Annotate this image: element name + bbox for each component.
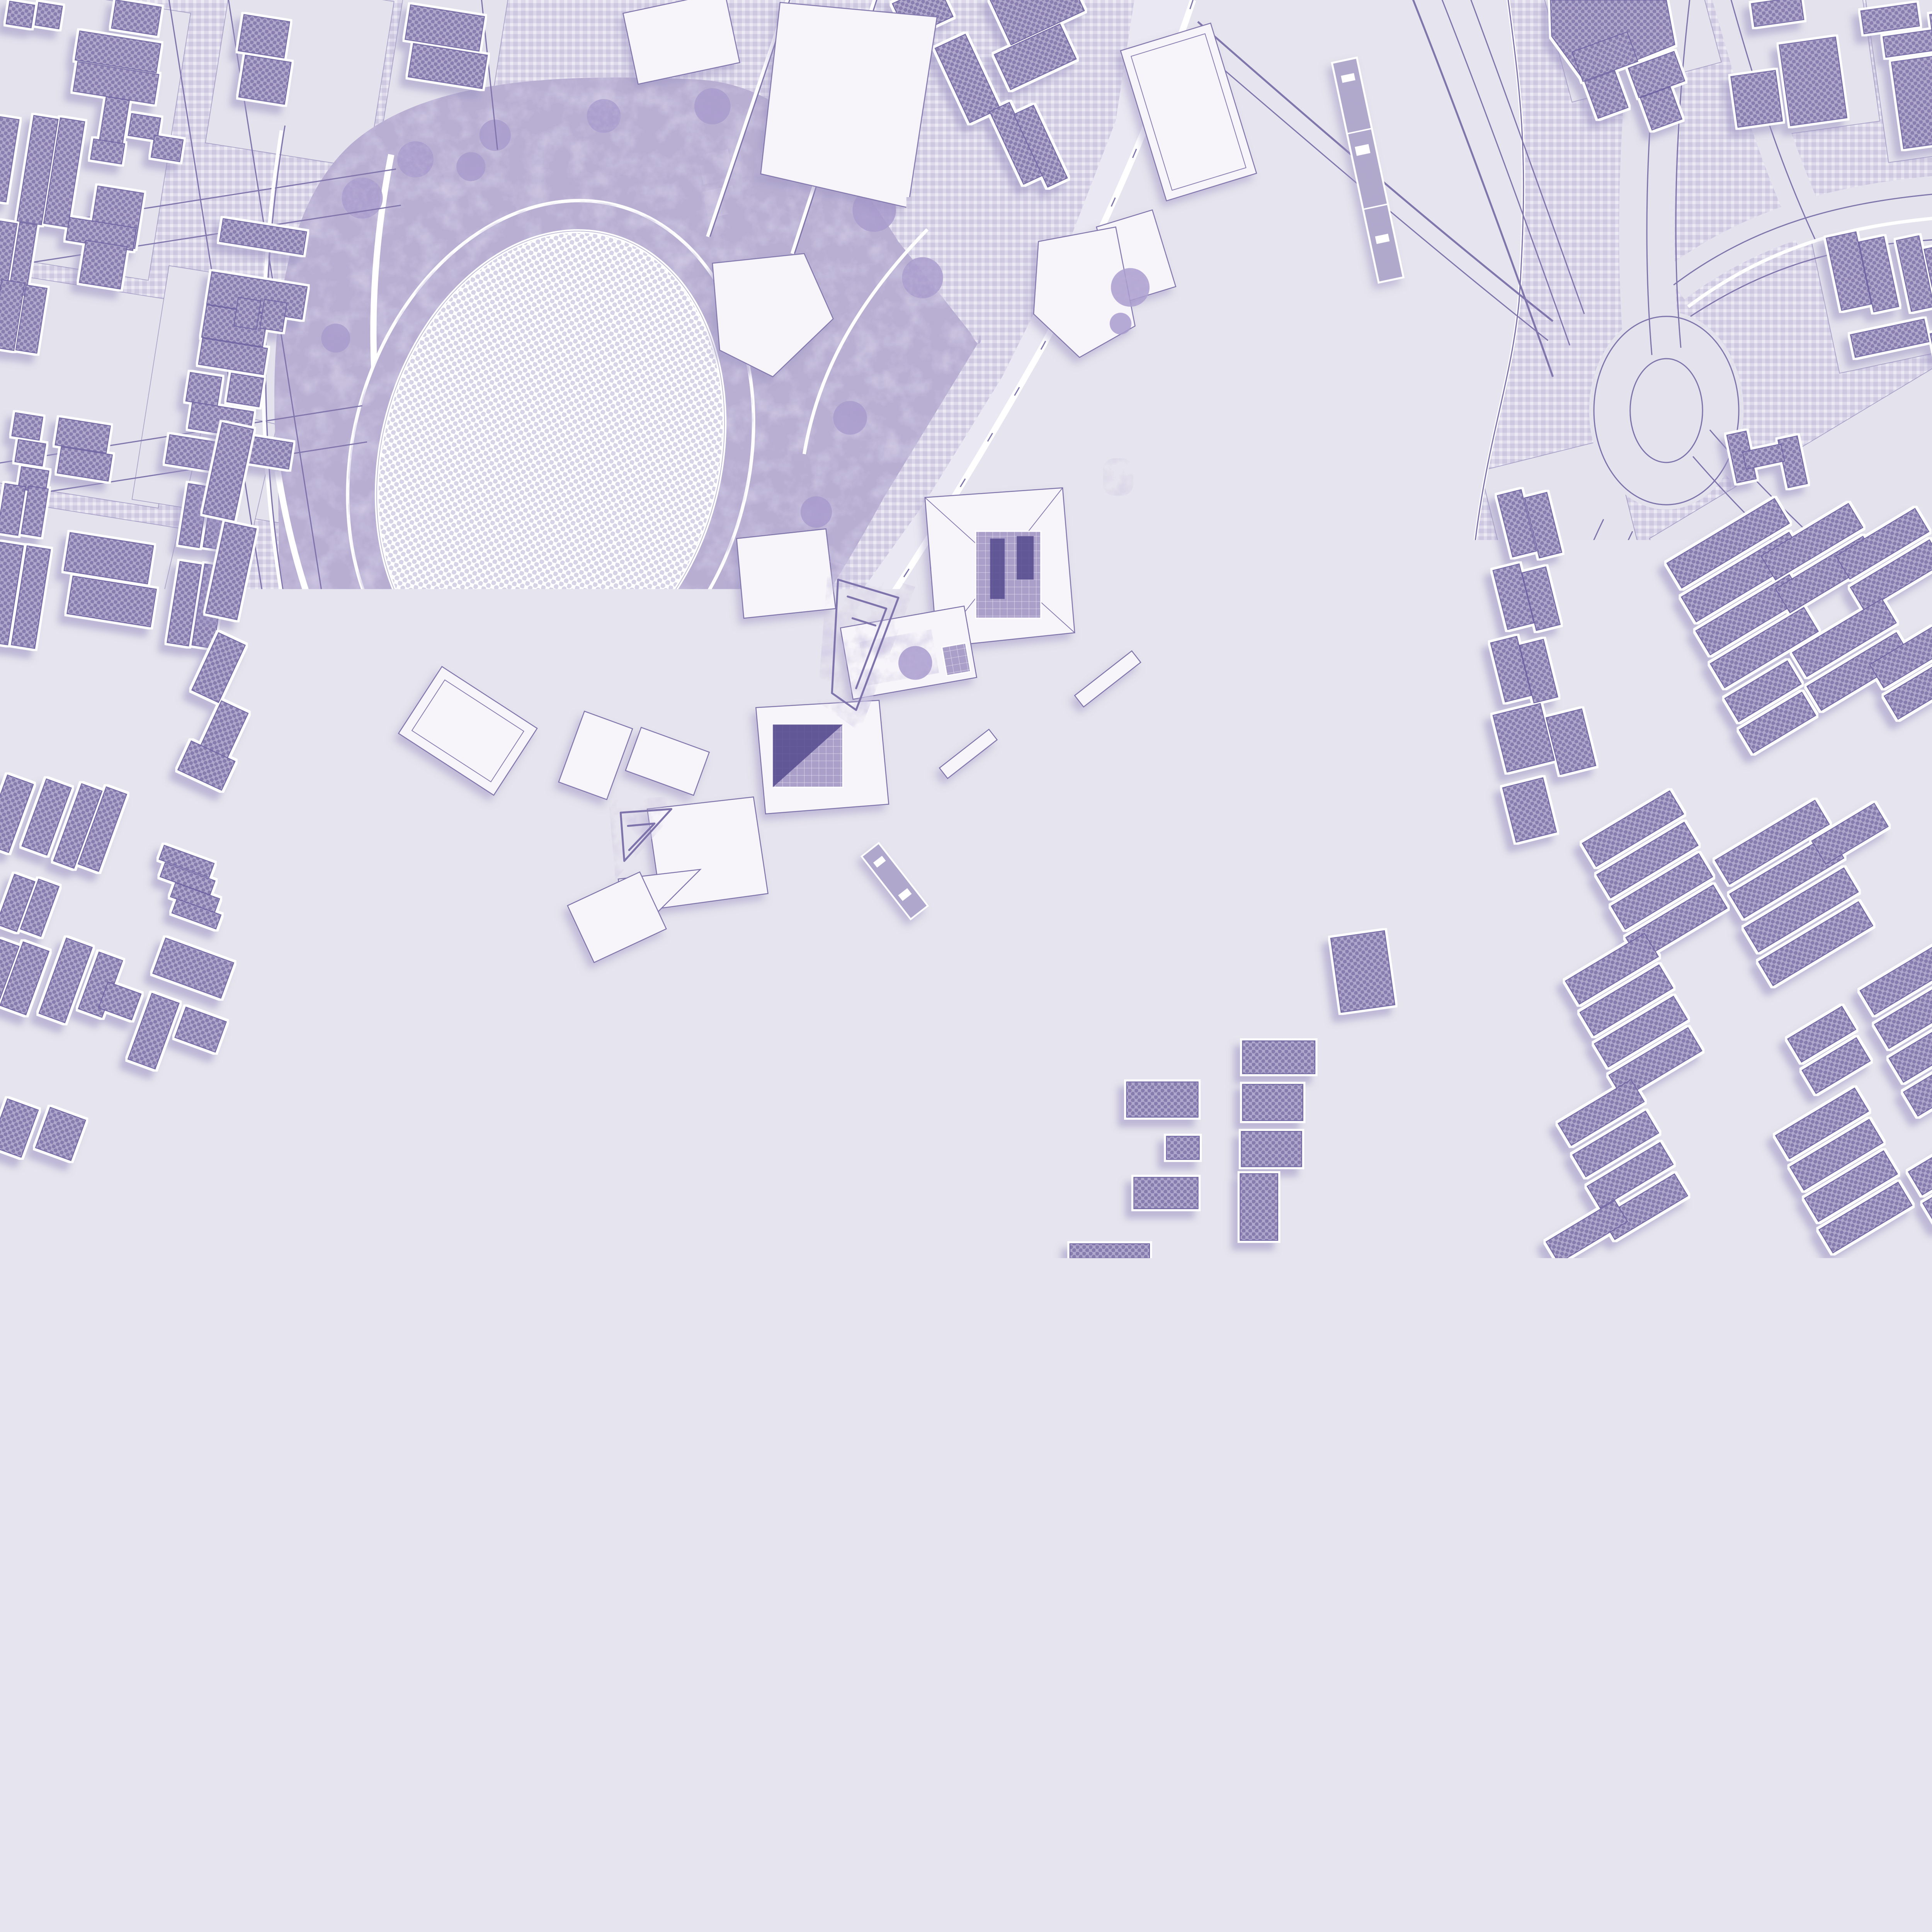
scale-label-0: 0m: [1462, 1247, 1476, 1258]
pool: [1104, 459, 1133, 495]
building: [227, 373, 264, 407]
waterfront-building: [736, 529, 835, 618]
building: [79, 240, 127, 289]
pontoon: [1242, 1131, 1302, 1167]
building: [238, 15, 289, 58]
building: [1779, 37, 1847, 126]
pontoon: [1070, 1244, 1150, 1258]
building: [239, 55, 291, 104]
building: [35, 2, 63, 29]
skylight-grid: [942, 643, 971, 676]
building: [234, 297, 261, 329]
pontoon: [1331, 931, 1395, 1012]
pontoon: [1167, 1136, 1199, 1160]
building: [90, 139, 125, 164]
building: [12, 413, 43, 440]
pontoon: [1127, 1082, 1198, 1117]
pontoon: [1243, 1084, 1303, 1121]
scale-label-40: 40m: [1579, 1247, 1599, 1258]
scale-label-10: 10m: [1492, 1247, 1512, 1258]
scale-label-20: 20m: [1520, 1247, 1541, 1258]
building: [1731, 70, 1782, 127]
pontoon: [1243, 1041, 1315, 1074]
pontoon: [1240, 1174, 1278, 1241]
white-building-large: [761, 2, 937, 207]
site-plan-map: 0m 10m 20m 40m: [0, 0, 1932, 1258]
pontoon: [1134, 1177, 1198, 1209]
building: [6, 1, 35, 28]
building: [15, 440, 46, 466]
building: [186, 372, 222, 406]
building: [151, 135, 183, 162]
roundabout-island: [1630, 359, 1703, 463]
building: [260, 299, 287, 332]
